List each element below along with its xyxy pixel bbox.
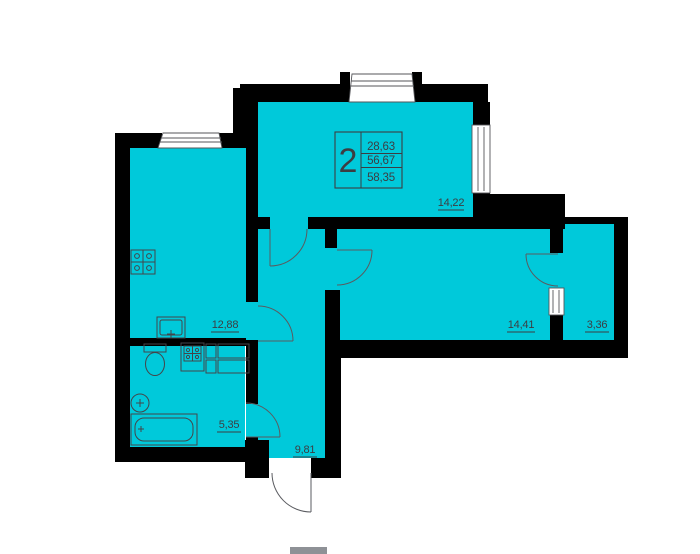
room-area-label: 9,81 xyxy=(295,444,316,456)
doorway-gap xyxy=(270,217,308,229)
bay-window-icon xyxy=(158,133,222,148)
total-area-value: 56,67 xyxy=(367,155,395,167)
window-icon xyxy=(549,288,564,315)
doorway-gap xyxy=(246,302,258,340)
rooms-count-label: 2 xyxy=(339,142,358,180)
doorway-gap xyxy=(246,404,258,437)
room-hallway-floor xyxy=(258,229,325,458)
doorway-gap xyxy=(325,248,337,290)
room-kitchen-living-floor xyxy=(130,147,246,338)
floor-plan-canvas: 14,22 12,88 14,41 3,36 5,35 9,81 2 28,63… xyxy=(0,0,700,554)
doorway-gap xyxy=(550,253,563,290)
room-area-label: 14,41 xyxy=(508,319,535,331)
living-area-value: 28,63 xyxy=(367,141,395,153)
bay-window-icon xyxy=(349,74,415,102)
window-icon xyxy=(472,125,490,193)
room-area-label: 14,22 xyxy=(438,197,465,209)
room-area-label: 3,36 xyxy=(587,319,608,331)
floor-plan: 14,22 12,88 14,41 3,36 5,35 9,81 2 28,63… xyxy=(0,0,700,554)
door-arc-icon xyxy=(272,473,311,512)
room-area-label: 5,35 xyxy=(219,419,240,431)
overall-area-value: 58,35 xyxy=(367,172,395,184)
watermark-bar xyxy=(290,547,327,554)
room-area-label: 12,88 xyxy=(212,319,239,331)
